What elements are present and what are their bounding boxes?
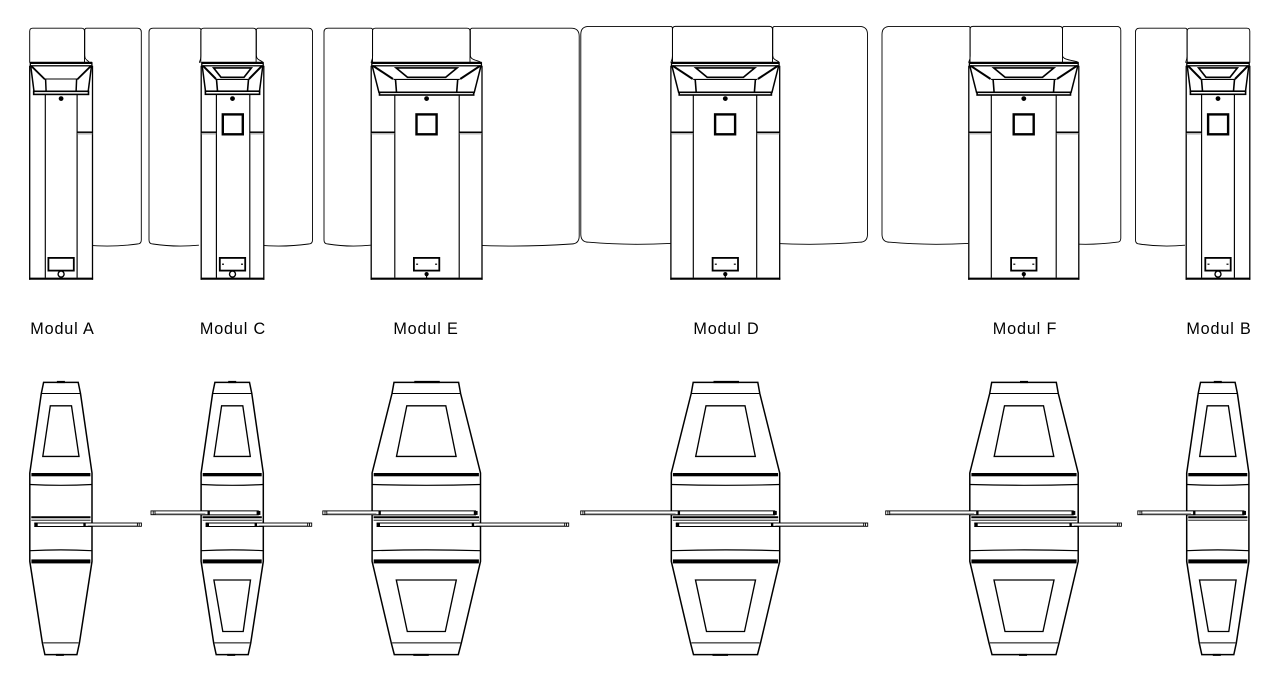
svg-text:Modul D: Modul D [693, 320, 759, 338]
svg-text:Modul C: Modul C [200, 320, 266, 338]
svg-text:Modul B: Modul B [1186, 320, 1251, 338]
svg-text:Modul F: Modul F [993, 320, 1057, 338]
svg-text:Modul E: Modul E [393, 320, 458, 338]
svg-text:Modul A: Modul A [30, 320, 94, 338]
